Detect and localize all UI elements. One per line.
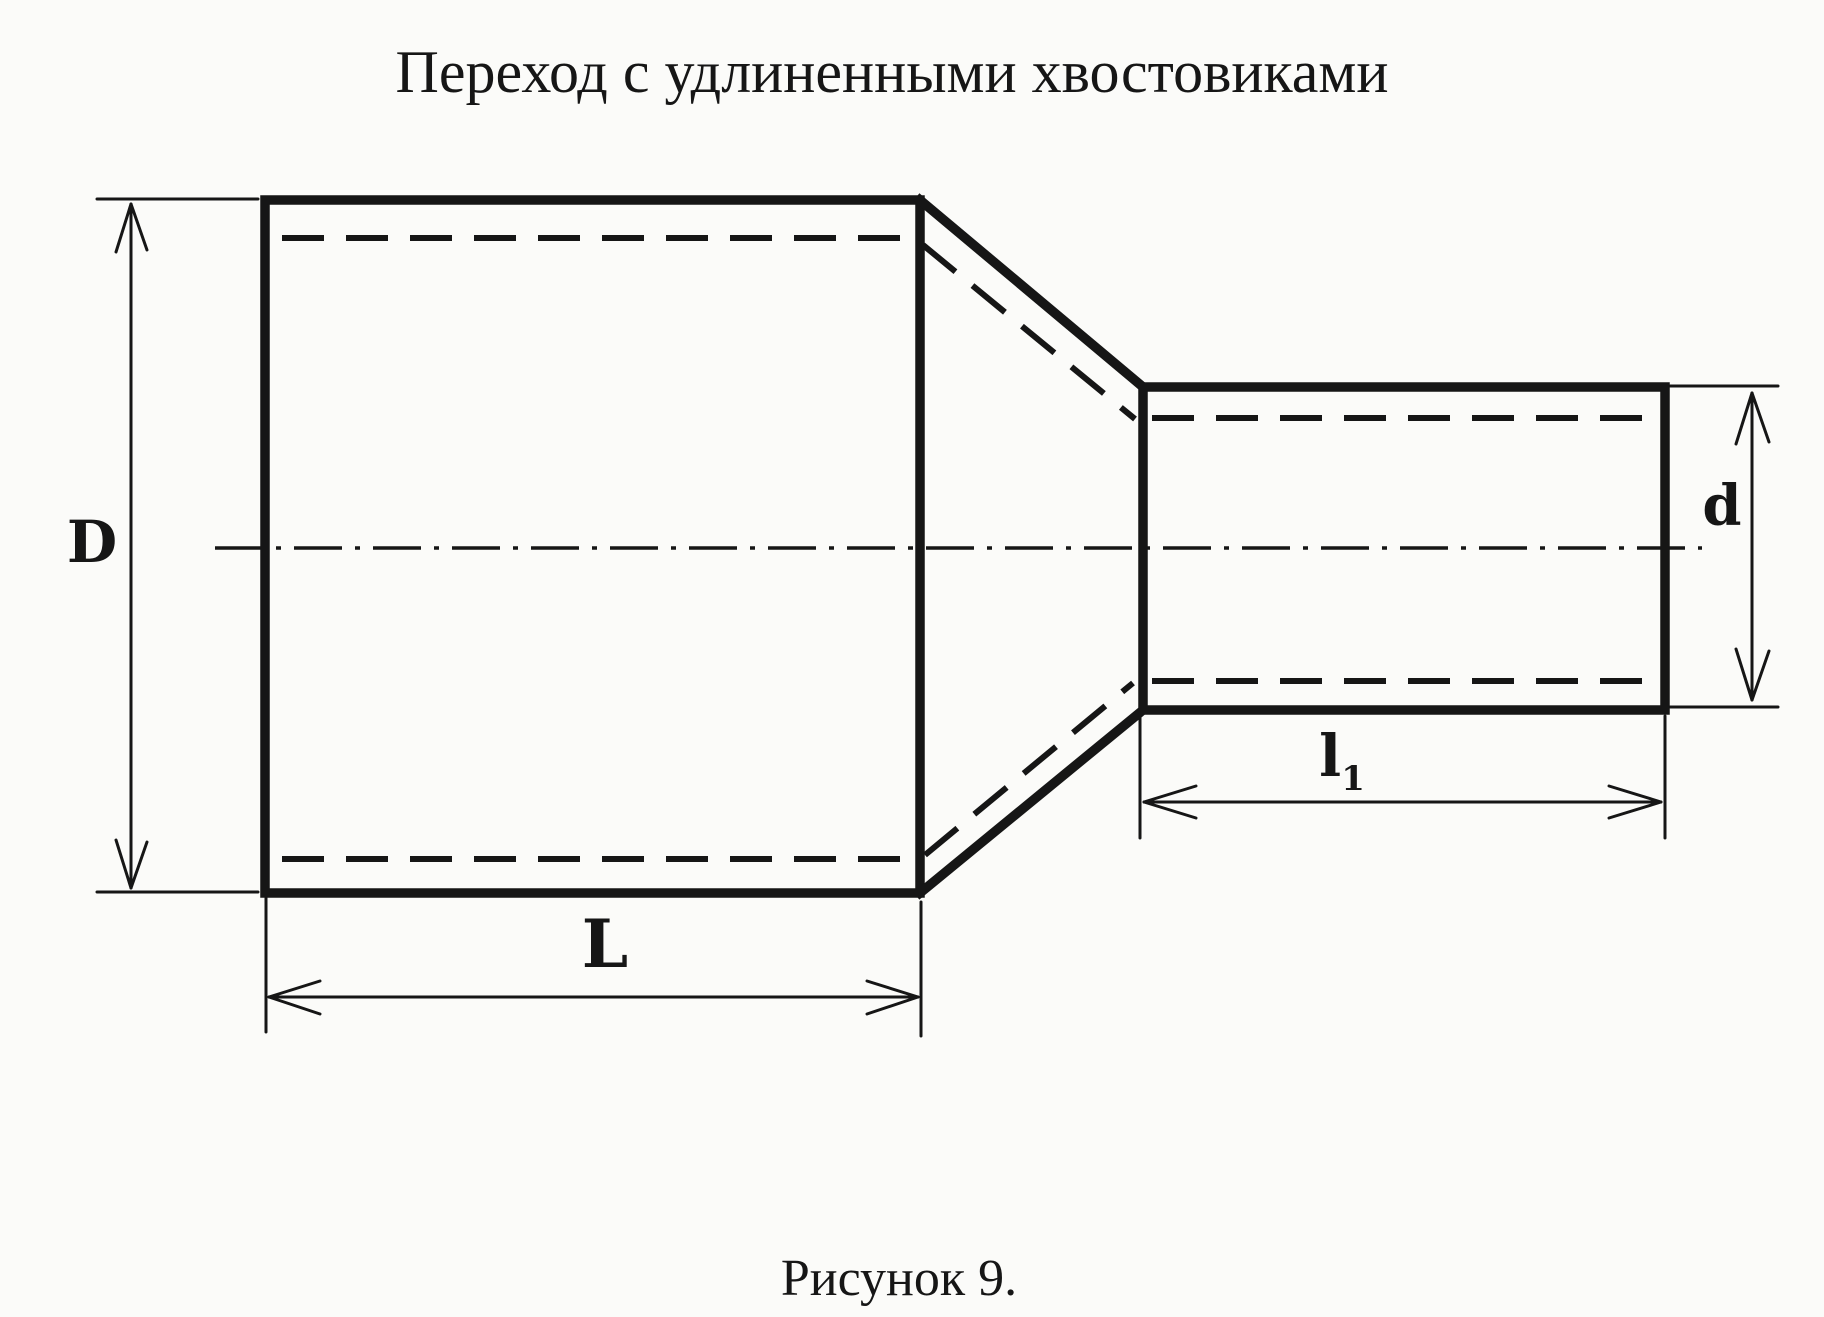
label-d: d <box>1702 473 1741 539</box>
dimension-L: L <box>266 898 921 1036</box>
label-l1: l1 <box>1319 722 1365 799</box>
figure-caption: Рисунок 9. <box>781 1250 1017 1307</box>
drawing-title: Переход с удлиненными хвостовиками <box>396 39 1389 105</box>
label-L: L <box>582 905 628 983</box>
label-l1-subscript: 1 <box>1341 759 1365 799</box>
cone-bottom-edge <box>920 710 1143 893</box>
scanned-drawing-page: Переход с удлиненными хвостовиками <box>0 0 1824 1317</box>
cone-bottom-hidden-line <box>925 683 1133 855</box>
cone-top-hidden-line <box>923 245 1135 419</box>
label-D: D <box>67 508 117 576</box>
dimension-d: d <box>1670 386 1778 707</box>
cone-top-edge <box>920 200 1143 387</box>
reducer-technical-drawing: Переход с удлиненными хвостовиками <box>0 0 1824 1317</box>
dimension-D: D <box>67 199 258 892</box>
dimension-l1: l1 <box>1140 716 1665 838</box>
label-l1-base: l <box>1319 722 1341 790</box>
